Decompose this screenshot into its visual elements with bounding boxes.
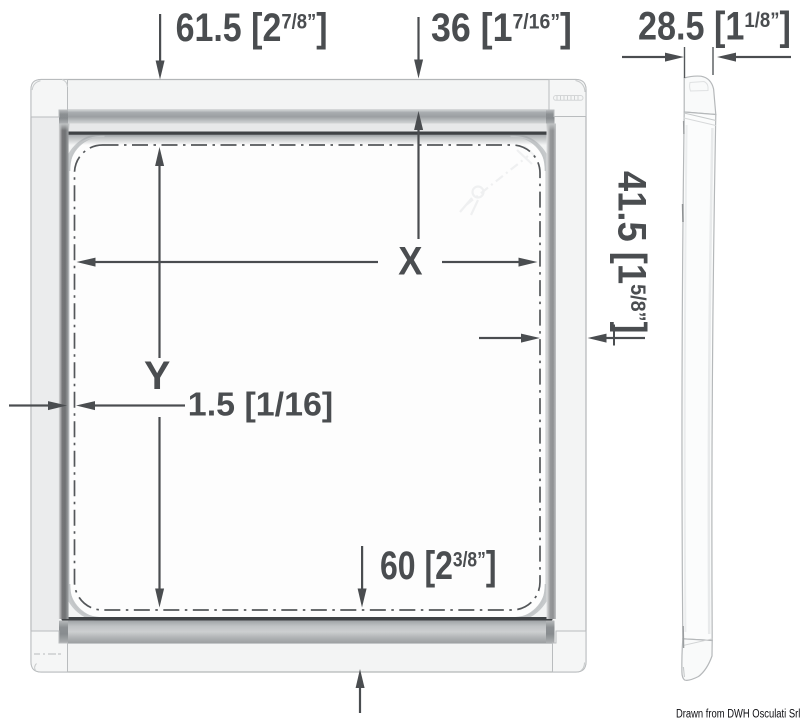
- svg-text:Drawn from DWH Osculati Srl: Drawn from DWH Osculati Srl: [676, 707, 800, 720]
- svg-text:X: X: [398, 240, 422, 284]
- svg-text:Y: Y: [144, 354, 170, 398]
- svg-text:1.5 [1/16]: 1.5 [1/16]: [188, 387, 333, 423]
